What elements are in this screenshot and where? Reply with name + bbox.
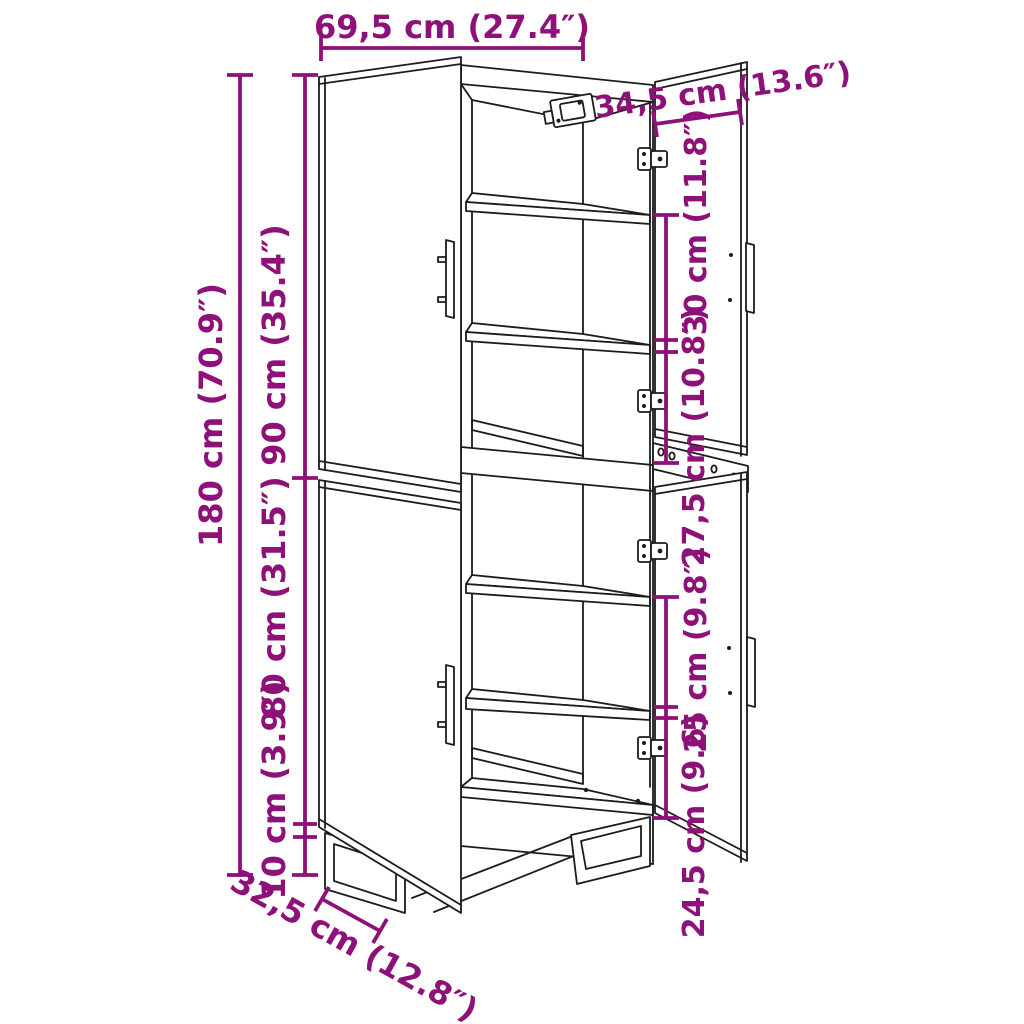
shelves bbox=[461, 193, 653, 815]
label-compartment-second: 27,5 cm (10.8″) bbox=[677, 308, 712, 567]
cabinet-interior bbox=[461, 65, 653, 787]
door-handle bbox=[747, 637, 755, 707]
cabinet-dimension-diagram: 69,5 cm (27.4″) 34,5 cm (13.6″) 180 cm (… bbox=[0, 0, 1024, 1024]
hinge-icon bbox=[638, 148, 667, 170]
hinge-icon bbox=[638, 737, 667, 759]
label-overall-width: 69,5 cm (27.4″) bbox=[314, 8, 590, 46]
label-compartment-bottom: 24,5 cm (9.6) bbox=[677, 714, 712, 939]
dimension-sections-left bbox=[292, 75, 318, 875]
panel-hole bbox=[636, 799, 640, 803]
diagram-canvas: 69,5 cm (27.4″) 34,5 cm (13.6″) 180 cm (… bbox=[0, 0, 1024, 1024]
dimension-overall-height bbox=[227, 75, 253, 875]
panel-hole bbox=[584, 788, 588, 792]
hinge-icon bbox=[638, 540, 667, 562]
label-compartment-top: 30 cm (11.8″) bbox=[679, 109, 714, 336]
label-overall-height: 180 cm (70.9″) bbox=[192, 283, 230, 547]
label-upper-section-height: 90 cm (35.4″) bbox=[255, 224, 293, 466]
sled-leg-back bbox=[571, 817, 650, 884]
upper-left-door bbox=[319, 57, 461, 492]
label-base-height: 10 cm (3.9″) bbox=[255, 680, 293, 899]
dimension-labels: 69,5 cm (27.4″) 34,5 cm (13.6″) 180 cm (… bbox=[192, 8, 853, 1024]
middle-divider bbox=[461, 447, 653, 491]
top-mount-bracket bbox=[542, 94, 596, 129]
hinge-icon bbox=[638, 390, 667, 412]
door-handle bbox=[746, 243, 754, 313]
